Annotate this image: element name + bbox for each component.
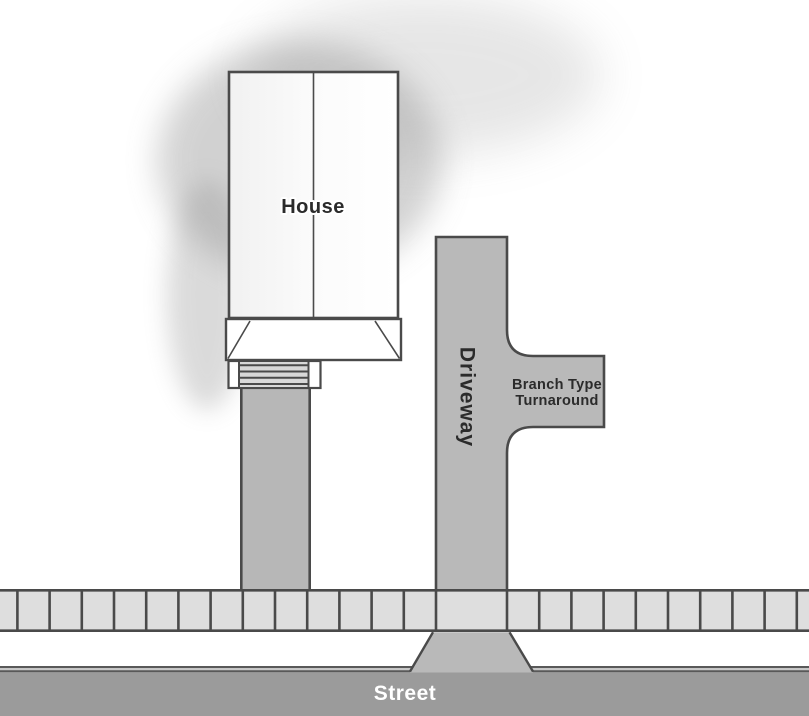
curb-line-upper	[0, 666, 809, 668]
street-label: Street	[374, 682, 437, 705]
walkway	[240, 388, 311, 589]
sidewalk	[0, 589, 809, 632]
porch-outline	[226, 319, 401, 360]
house-label: House	[281, 196, 345, 218]
turnaround-label-line1: Branch Type	[512, 377, 602, 393]
driveway-label: Driveway	[456, 347, 479, 447]
turnaround-label: Branch Type Turnaround	[512, 377, 602, 409]
diagram-canvas: Driveway Branch Type Turnaround House	[0, 0, 809, 716]
driveway-group: Driveway Branch Type Turnaround	[436, 237, 604, 589]
turnaround-label-line2: Turnaround	[515, 393, 598, 409]
driveway-apron	[410, 632, 533, 672]
porch	[226, 319, 401, 360]
curb-line-middle	[0, 668, 809, 670]
entry-steps	[229, 361, 321, 388]
house: House	[229, 72, 398, 318]
curb-line-lower	[0, 670, 809, 672]
walkway-pavement	[240, 388, 311, 589]
site-plan-diagram: Driveway Branch Type Turnaround House	[0, 0, 809, 716]
